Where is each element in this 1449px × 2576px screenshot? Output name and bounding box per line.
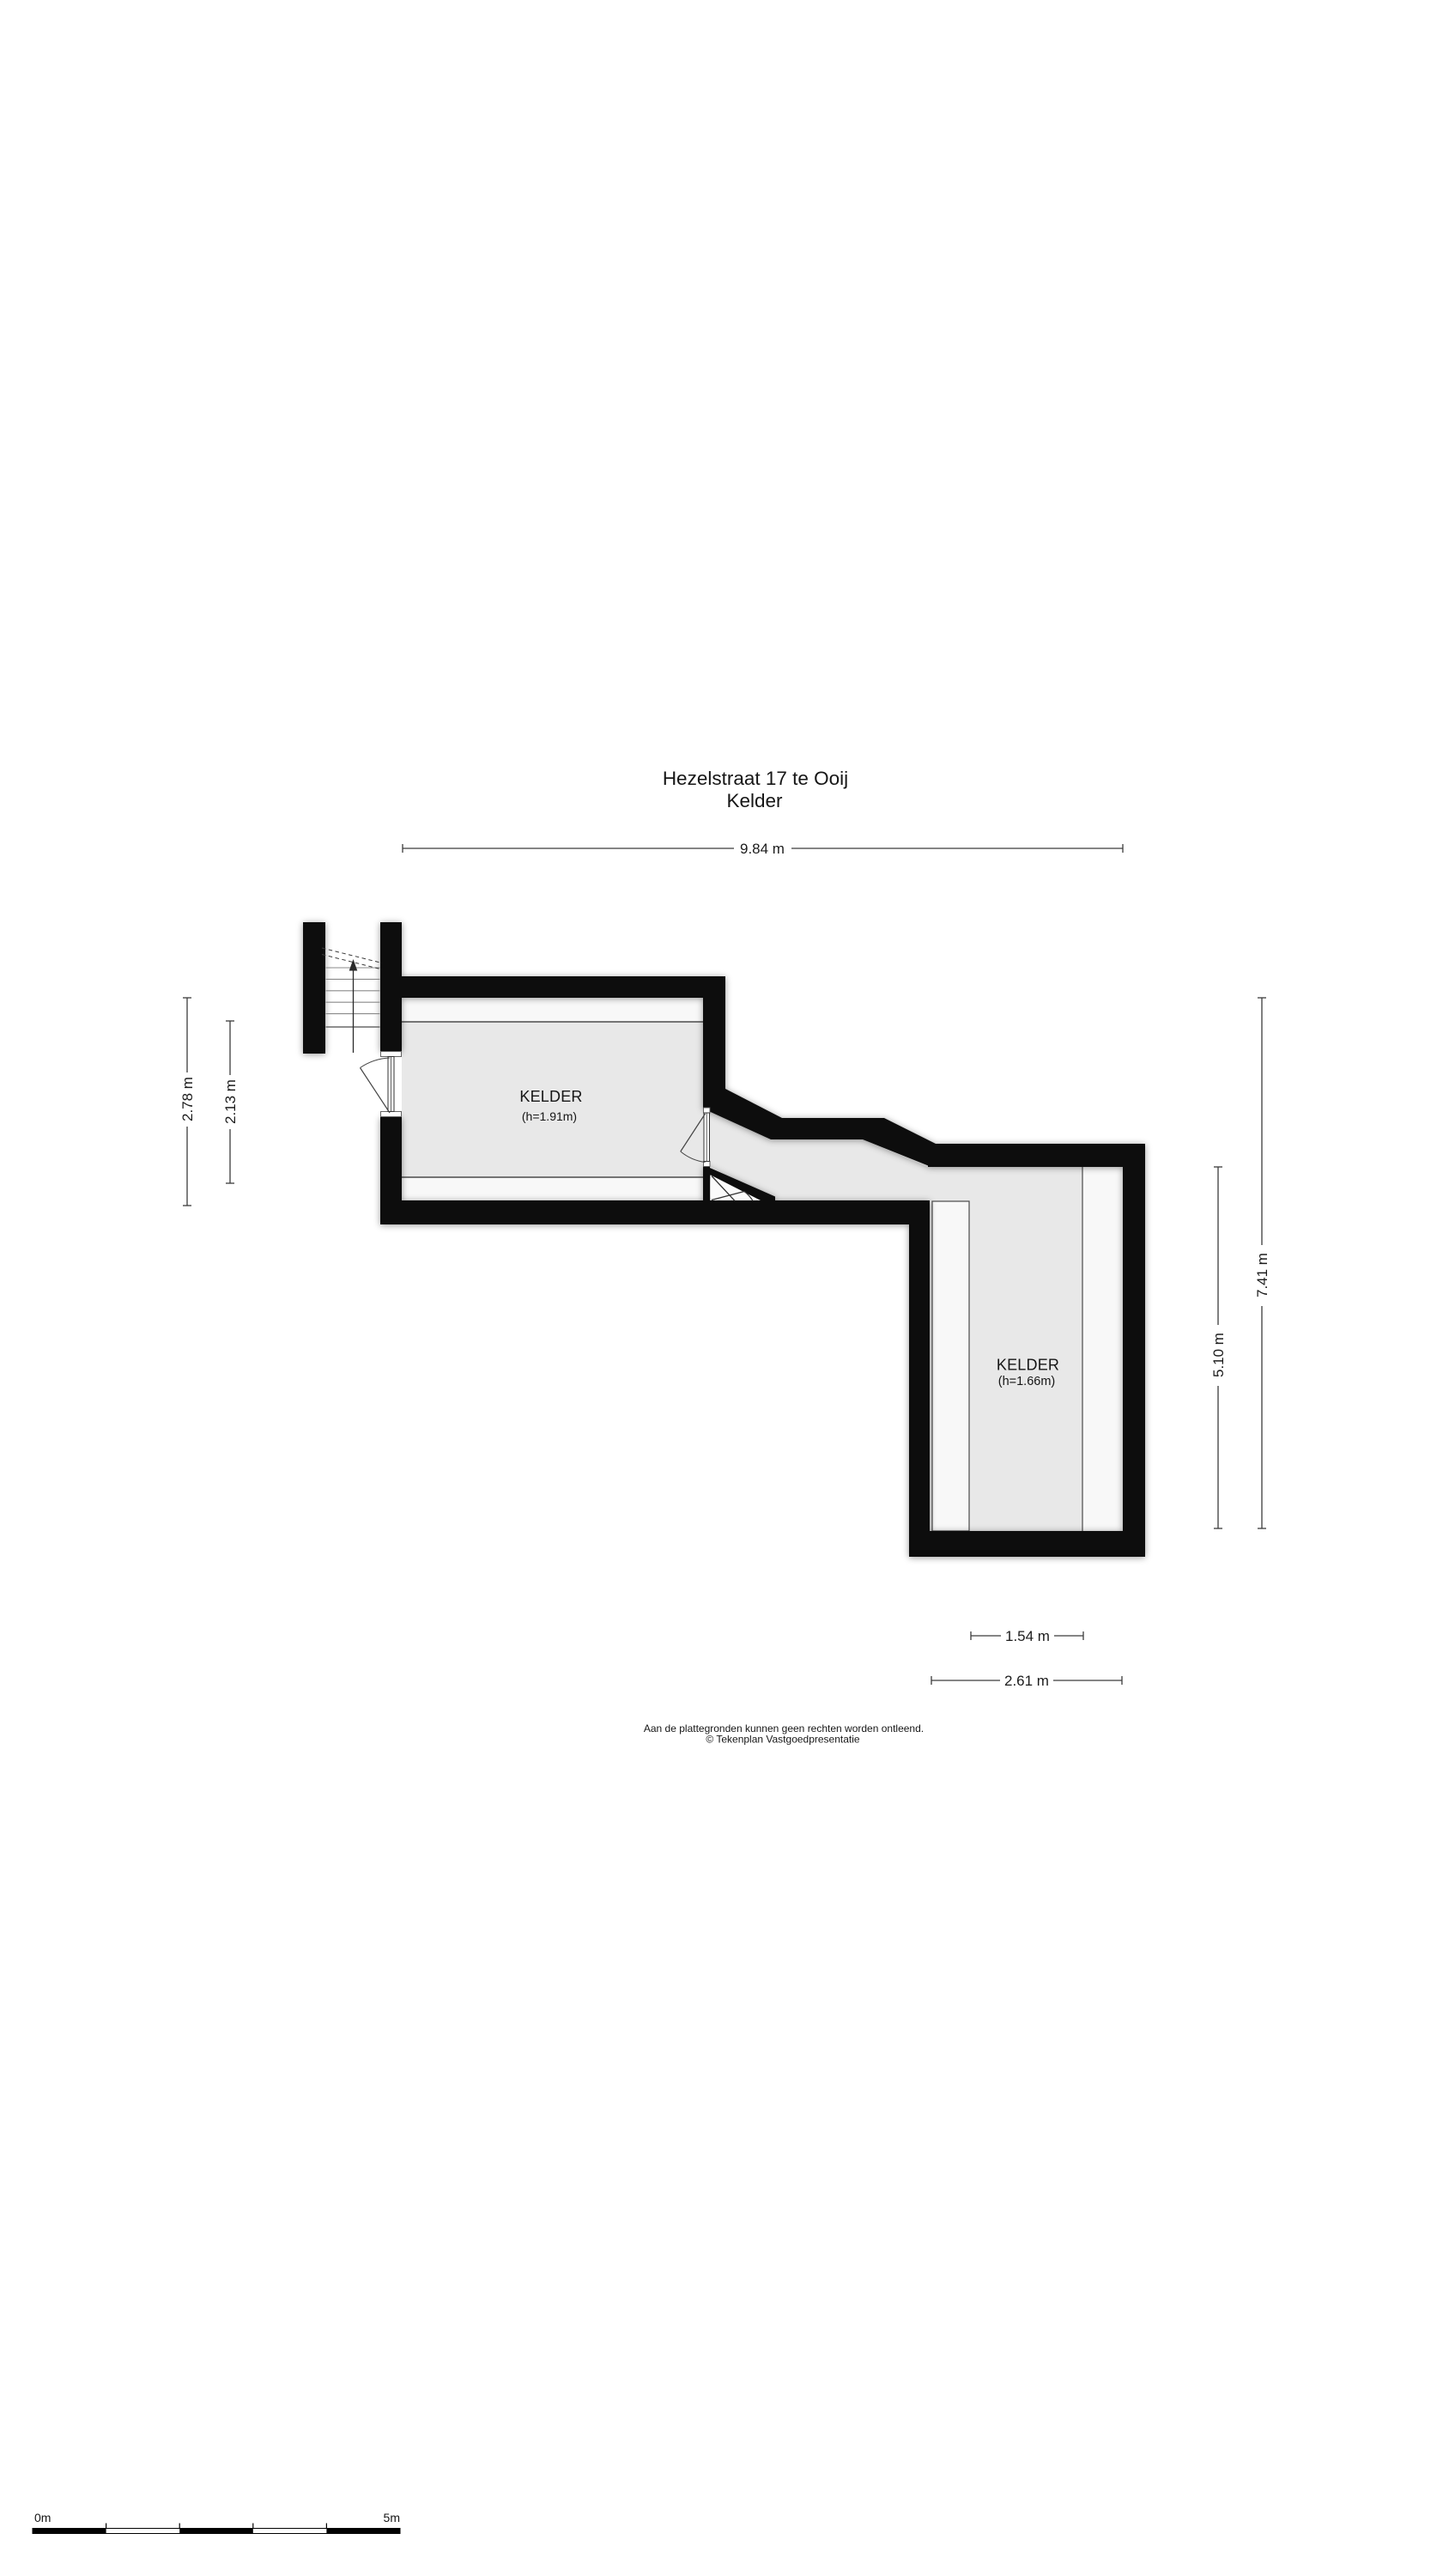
svg-text:1.54 m: 1.54 m	[1005, 1628, 1050, 1644]
svg-text:(h=1.91m): (h=1.91m)	[522, 1109, 577, 1123]
svg-text:7.41 m: 7.41 m	[1254, 1253, 1270, 1297]
svg-text:9.84 m: 9.84 m	[740, 841, 785, 857]
svg-text:0m: 0m	[34, 2511, 51, 2524]
svg-text:Kelder: Kelder	[726, 790, 783, 811]
svg-text:2.13 m: 2.13 m	[222, 1079, 239, 1124]
svg-text:KELDER: KELDER	[519, 1088, 582, 1105]
svg-text:2.78 m: 2.78 m	[179, 1077, 196, 1121]
svg-text:KELDER: KELDER	[997, 1357, 1059, 1374]
svg-text:(h=1.66m): (h=1.66m)	[998, 1375, 1056, 1388]
svg-text:Hezelstraat 17 te Ooij: Hezelstraat 17 te Ooij	[663, 768, 848, 789]
svg-text:5m: 5m	[384, 2511, 400, 2524]
svg-text:© Tekenplan Vastgoedpresentati: © Tekenplan Vastgoedpresentatie	[706, 1734, 860, 1746]
svg-text:2.61 m: 2.61 m	[1004, 1673, 1049, 1689]
svg-text:5.10 m: 5.10 m	[1210, 1333, 1227, 1377]
